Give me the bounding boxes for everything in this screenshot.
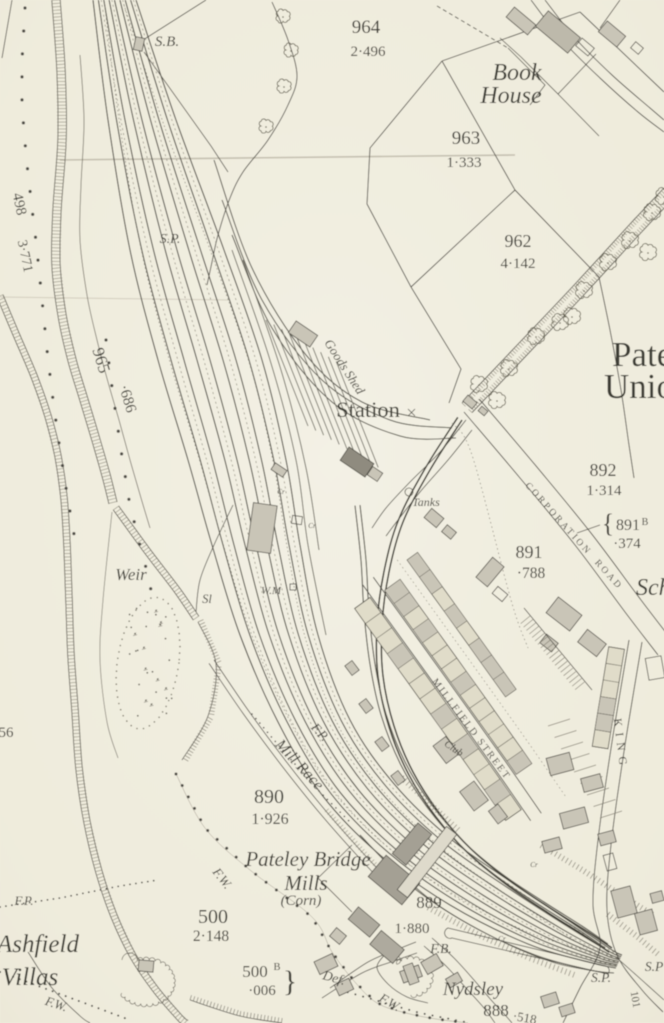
svg-text:S.P.: S.P. (160, 232, 181, 247)
svg-text:962: 962 (505, 231, 532, 251)
svg-text:S.P.: S.P. (591, 970, 611, 985)
svg-text:S.B.: S.B. (155, 34, 179, 50)
svg-text:Station: Station (336, 397, 400, 422)
svg-text:Ashfield: Ashfield (0, 931, 79, 958)
svg-text:S.P: S.P (645, 959, 663, 974)
svg-text:500: 500 (198, 906, 228, 928)
svg-text:·006: ·006 (248, 983, 276, 999)
svg-text:890: 890 (254, 786, 284, 808)
svg-text:Unio: Unio (604, 367, 664, 406)
svg-text:891: 891 (516, 542, 543, 562)
svg-text:House: House (479, 83, 542, 109)
svg-text:1·926: 1·926 (251, 811, 288, 828)
svg-text:1·880: 1·880 (395, 921, 430, 937)
svg-text:2·148: 2·148 (193, 928, 229, 945)
svg-text:1·314: 1·314 (587, 483, 622, 499)
svg-text:Villas: Villas (2, 964, 58, 991)
svg-text:964: 964 (352, 17, 381, 38)
svg-text:56: 56 (0, 725, 14, 741)
svg-text:891: 891 (616, 517, 640, 534)
svg-text:Sch: Sch (636, 575, 664, 601)
svg-text:Pateley Bridge: Pateley Bridge (244, 847, 370, 871)
svg-text:F.B.: F.B. (429, 941, 452, 956)
svg-text:Cr: Cr (308, 522, 316, 530)
svg-text:·374: ·374 (613, 536, 641, 552)
svg-text:{: { (602, 509, 614, 538)
svg-text:2·496: 2·496 (351, 44, 386, 60)
svg-text:4·142: 4·142 (501, 256, 536, 272)
svg-text:Tanks: Tanks (412, 495, 440, 509)
svg-text:963: 963 (452, 128, 481, 149)
svg-text:Mills: Mills (283, 871, 327, 895)
svg-text:Cr: Cr (277, 488, 285, 496)
svg-text:Weir: Weir (115, 565, 147, 584)
svg-text:892: 892 (590, 460, 617, 480)
svg-text:Sl: Sl (202, 592, 212, 606)
svg-text:(Corn): (Corn) (281, 893, 322, 909)
svg-text:Cr: Cr (530, 861, 538, 869)
svg-text:888: 888 (483, 1001, 509, 1020)
svg-text:}: } (283, 965, 297, 998)
svg-text:B: B (273, 962, 280, 973)
svg-text:889: 889 (416, 893, 442, 912)
svg-text:Cr: Cr (498, 935, 506, 943)
svg-text:B: B (642, 517, 649, 528)
svg-text:1·333: 1·333 (447, 155, 482, 171)
svg-text:Nydsley: Nydsley (442, 979, 504, 1000)
svg-text:500: 500 (242, 962, 268, 981)
svg-text:F.P.: F.P. (13, 893, 33, 908)
svg-text:W.M: W.M (261, 585, 282, 597)
svg-text:·788: ·788 (517, 565, 546, 582)
